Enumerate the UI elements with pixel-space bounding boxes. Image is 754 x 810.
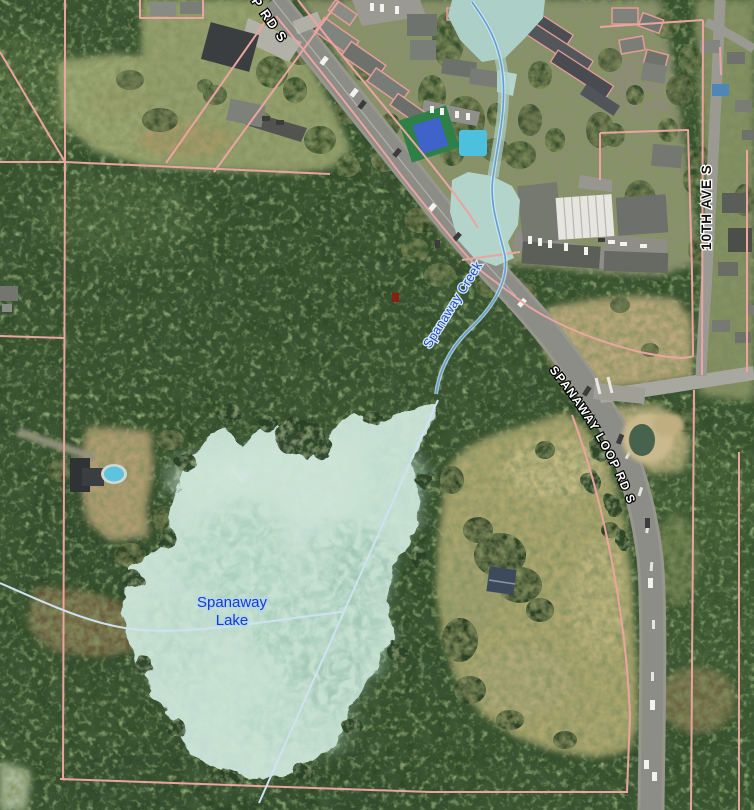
- svg-text:Lake: Lake: [216, 612, 249, 629]
- svg-text:Spanaway: Spanaway: [197, 594, 268, 611]
- svg-text:10TH AVE S: 10TH AVE S: [699, 164, 714, 250]
